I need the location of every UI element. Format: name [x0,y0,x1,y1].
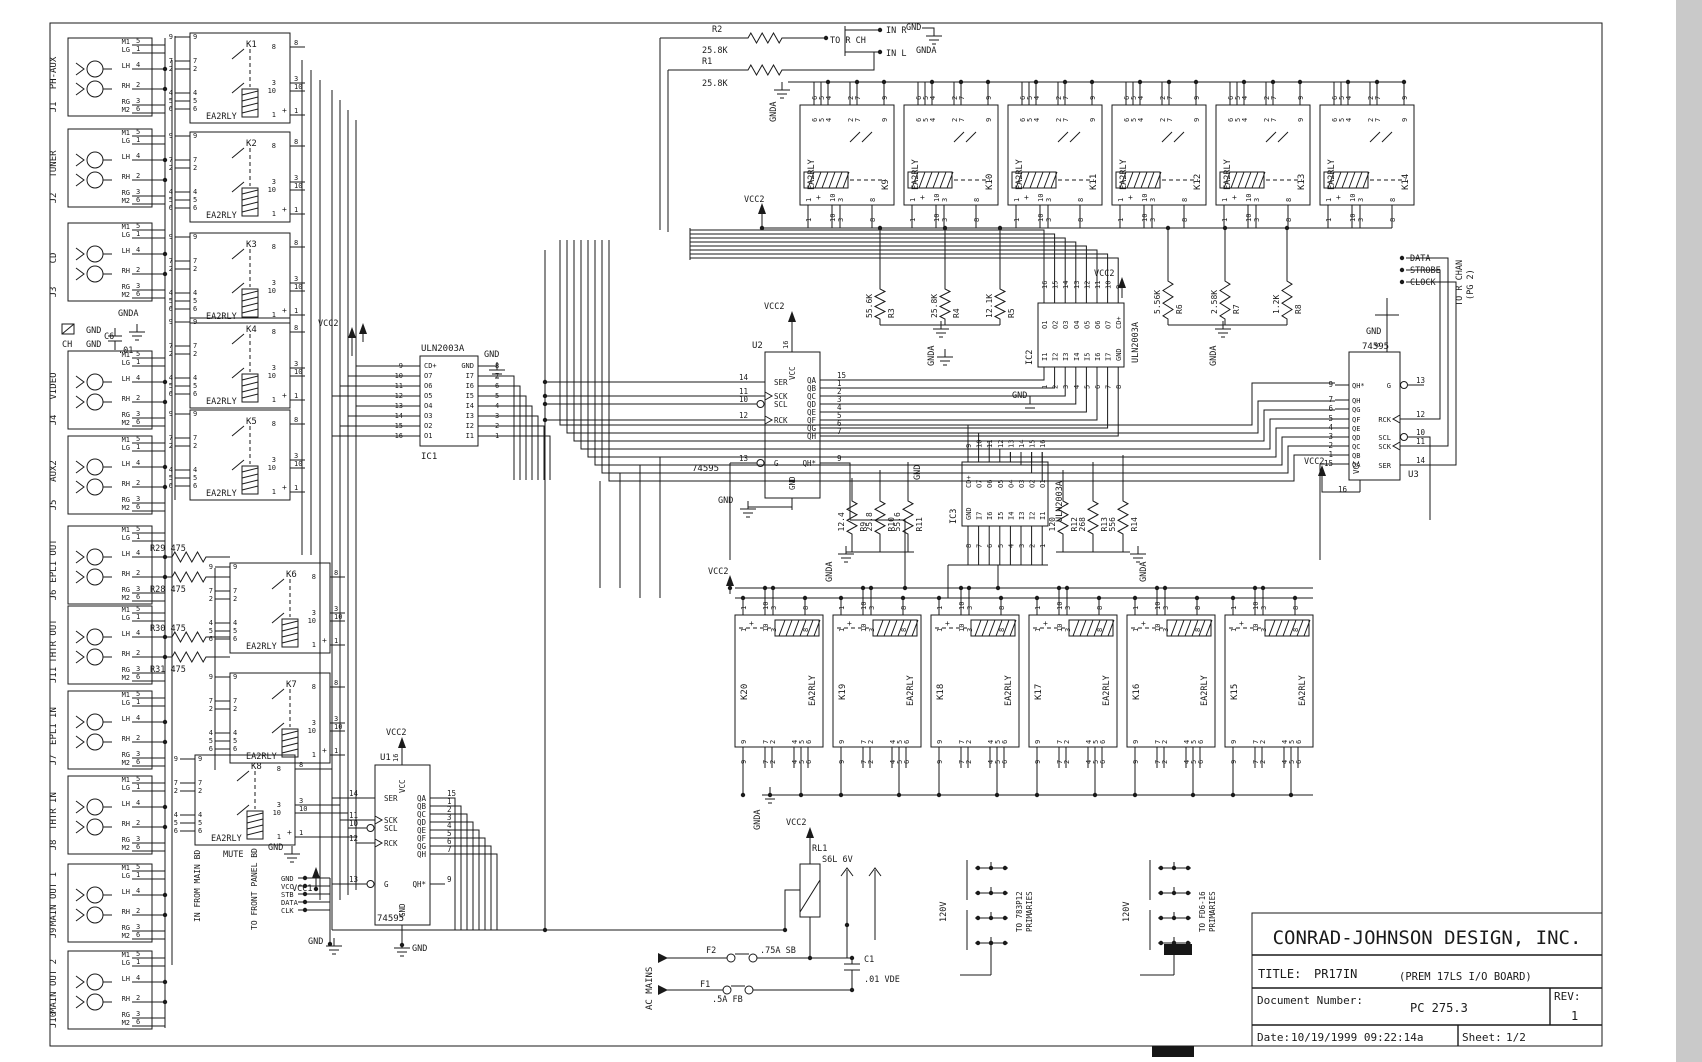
pin-number: 9 [169,318,173,326]
power-arrow-icon [788,311,796,322]
pin-label: RCK [774,416,788,425]
pin-number: 8 [1077,218,1085,222]
pin-number: 6 [136,196,140,204]
pin-number: 1 [838,606,846,610]
pin-number: 5 [136,690,140,698]
pin-label: I1 [466,432,474,440]
invert-bubble-icon [757,401,764,408]
pin-number: 5 [997,544,1005,548]
pin-number: 1 [1132,606,1140,610]
pin-number: 10 [294,283,302,291]
resistor-R31 [166,652,212,662]
pin-number: 2 [169,164,173,172]
pin-number: 2 [193,65,197,73]
pin-number: 1 [294,107,298,115]
pin-number: 3 [312,719,316,727]
wire [493,436,550,480]
pin-label: CD+ [424,362,437,370]
coil-hatch [242,480,258,484]
pin-number: 8 [1181,218,1189,222]
pin-label: RCK [1378,416,1391,424]
pin-number: 3 [136,1010,140,1018]
wire [581,240,1335,449]
resistor-value: 25.8 [865,512,874,531]
pin-number: 3 [272,364,276,372]
pin-number: 6 [1197,760,1205,764]
resistor-value: 268 [1078,517,1087,532]
coil-hatch [242,103,258,107]
pin-number: 9 [837,454,842,463]
junction-dot [763,586,767,590]
pin-number: 5 [495,392,499,400]
wire [788,52,878,70]
relay-ref: K17 [1034,684,1044,700]
pin-number: 2 [769,740,777,744]
pin-number: 2 [136,649,140,657]
junction-dot [163,400,167,404]
pin-label: RH [122,735,130,743]
net-label: GND [913,465,923,480]
pin-number: 9 [174,755,178,763]
pin-number: 3 [136,665,140,673]
wire [835,377,1044,380]
invert-bubble-icon [1401,434,1408,441]
pin-label: O3 [424,412,432,420]
pin-number: 8 [1077,198,1085,202]
pin-number: 10 [958,602,966,610]
pin-number: 6 [805,760,813,764]
net-label: DATA [1410,254,1430,264]
pin-number: 8 [1292,606,1300,610]
pin-label: I2 [1029,512,1037,520]
junction-dot [869,586,873,590]
junction-dot [1166,226,1170,230]
junction-dot [1231,793,1235,797]
pin-number: 6 [233,745,237,753]
junction-dot [808,956,812,960]
pin-number: 1 [1325,218,1333,222]
pin-label: M2 [122,932,130,940]
pin-label: M2 [122,844,130,852]
pin-number: 10 [1154,602,1162,610]
pin-label: LG [122,534,130,542]
pin-label: LG [122,359,130,367]
pin-number: 4 [136,549,140,557]
junction-dot [1159,916,1163,920]
pin-label: RH [122,908,130,916]
net-label: GND [718,496,733,506]
pin-number: 9 [936,760,944,764]
pin-label: RH [122,820,130,828]
pin-number: 4 [136,974,140,982]
resistor-R8 [1282,275,1292,325]
pin-label: O5 [424,392,432,400]
contact [1370,132,1380,142]
pin-number: 6 [136,931,140,939]
junction-dot [826,80,830,84]
pin-number: 7 [1166,118,1174,122]
pin-number: 9 [1089,96,1097,100]
junction-dot [1034,80,1038,84]
junction-dot [163,272,167,276]
pin-label: GND [398,903,407,917]
net-label: TO R CHAN [1455,260,1465,306]
power-arrow-icon [806,827,814,838]
pin-number: 7 [198,779,202,787]
rca-jack-icon [87,394,103,410]
wire [690,230,1044,293]
jack-arrow-icon [76,736,84,748]
jack-name: THTR IN [49,792,59,830]
rca-jack-icon [87,819,103,835]
resistor-value: 5.56K [1153,290,1162,314]
jack-arrow-icon [76,174,84,186]
jack-name: MAIN OUT 2 [49,959,59,1013]
junction-dot [1138,80,1142,84]
pin-number: 2 [193,265,197,273]
pin-number: 7 [1374,96,1382,100]
pin-number: 8 [1374,343,1382,347]
net-label: PRIMARIES [1025,891,1034,932]
board-subtitle: (PREM 17LS I/O BOARD) [1399,971,1532,983]
pin-number: 9 [1328,380,1333,389]
pin-number: 2 [169,350,173,358]
pin-number: 3 [294,360,298,368]
sheet-label: Sheet: [1462,1031,1502,1044]
relay-ref: K19 [838,684,848,700]
pin-number: 8 [272,420,276,428]
pin-number: 3 [136,923,140,931]
pin-number: 4 [169,289,173,297]
pin-number: 9 [1034,740,1042,744]
junction-dot [1400,256,1404,260]
pin-number: 8 [1194,606,1202,610]
pin-number: 4 [198,811,202,819]
jack-ref: J5 [49,500,59,511]
coil-hatch [242,109,258,113]
pin-number: 5 [136,222,140,230]
pin-number: 5 [169,297,173,305]
contact [237,771,249,781]
rca-jack-icon [87,907,103,923]
pin-label: M2 [122,291,130,299]
pin-number: 4 [136,887,140,895]
net-label: GND [412,944,427,954]
relay-ref: K6 [286,570,297,580]
pin-number: 3 [334,715,338,723]
junction-dot [1167,80,1171,84]
coil-hatch [1185,620,1191,636]
pin-label: O1 [424,432,432,440]
resistor-R5 [995,283,1005,325]
coil-hatch [247,813,263,817]
rca-jack-icon [87,734,103,750]
pin-label: GND [461,362,474,370]
pin-label: SCL [774,400,788,409]
pin-number: 5 [136,863,140,871]
jack-name: PH-AUX [49,56,59,89]
pin-number: 6 [136,290,140,298]
power-arrow-icon [359,323,367,334]
coil-polarity: + [282,306,287,315]
ic-ref: U1 [380,753,391,763]
contact [862,132,872,142]
ic-ref: IC3 [949,509,959,524]
pin-number: 10 [1105,281,1113,289]
company-name: CONRAD-JOHNSON DESIGN, INC. [1273,927,1582,949]
date-value: 10/19/1999 09:22:14a [1291,1031,1423,1044]
junction-dot [930,80,934,84]
pin-number: 5 [209,737,213,745]
jack-arrow-icon [76,801,84,813]
pin-number: 1 [805,198,813,202]
pin-number: 4 [169,466,173,474]
title-label: TITLE: [1258,967,1301,981]
rev-label: REV: [1554,990,1581,1003]
jack-arrow-icon [76,909,84,921]
pin-number: 8 [1115,385,1123,389]
contact [232,426,244,436]
resistor-value: 25.8K [930,294,939,318]
pin-number: 1 [1325,198,1333,202]
pin-number: 12 [1083,281,1091,289]
relay-part: EA2RLY [206,211,237,221]
resistor-value: 1.2K [1272,295,1281,314]
pin-label: RH [122,173,130,181]
junction-dot [1090,80,1094,84]
pin-number: 10 [1141,214,1149,222]
pin-label: LG [122,872,130,880]
pin-number: 6 [1099,760,1107,764]
resistor-ref: R28 475 [150,585,186,595]
pin-label: LH [122,460,130,468]
capacitor-ref: C1 [864,955,874,965]
junction-dot [998,226,1002,230]
junction-dot [959,586,963,590]
resistor-R28 [166,572,212,582]
rca-jack-icon [87,994,103,1010]
pin-label: I1 [1039,512,1047,520]
coil-hatch [1342,172,1348,188]
junction-dot [1186,866,1190,870]
rca-jack-icon [87,799,103,815]
pin-number: 2 [136,569,140,577]
pin-number: 4 [1137,118,1145,122]
pin-number: 4 [193,466,197,474]
pin-number: 9 [1230,760,1238,764]
jack-arrow-icon [76,268,84,280]
pin-number: 2 [169,265,173,273]
coil-hatch [242,297,258,301]
rca-jack-icon [87,266,103,282]
pin-label: VCC [788,366,797,380]
junction-dot [163,67,167,71]
wire [574,240,1335,441]
coil-hatch [282,743,298,747]
net-label: 120V [939,902,949,922]
contact [232,49,244,59]
pin-number: 9 [193,233,197,241]
coil-hatch [242,91,258,95]
pin-number: 14 [1062,281,1070,289]
relay-part: EA2RLY [206,112,237,122]
coil-hatch [242,196,258,200]
net-label: VCC2 [318,319,338,329]
pin-label: I5 [466,392,474,400]
pin-number: 3 [272,178,276,186]
pin-number: 1 [272,396,276,404]
jack-arrow-icon [76,461,84,473]
pin-number: 4 [929,118,937,122]
pin-number: 8 [334,569,338,577]
pin-number: 13 [1073,281,1081,289]
pin-number: 6 [136,503,140,511]
junction-dot [996,586,1000,590]
pin-number: 2 [193,442,197,450]
pin-number: 4 [495,402,499,410]
net-label: GNDA [769,102,779,122]
pin-number: 2 [136,394,140,402]
pin-label: LG [122,231,130,239]
pin-number: 6 [903,760,911,764]
junction-dot [799,793,803,797]
resistor-ref: R6 [1175,304,1184,314]
pin-number: 6 [198,827,202,835]
relay-RL1 [800,880,820,912]
pin-number: 10 [334,613,342,621]
pin-label: LH [122,715,130,723]
pin-number: 2 [495,422,499,430]
pin-number: 9 [1193,118,1201,122]
pin-label: I3 [1062,353,1070,361]
pin-number: 3 [941,218,949,222]
relay-ref: K13 [1297,174,1307,190]
pin-label: QH [417,850,427,859]
resistor-R2 [742,33,788,43]
coil-hatch [242,486,258,490]
pin-number: 2 [193,350,197,358]
pin-label: QC [1352,443,1360,451]
pin-number: 3 [1162,606,1170,610]
rca-jack-icon [87,549,103,565]
pin-number: 9 [209,673,213,681]
pin-number: 7 [1062,118,1070,122]
pin-number: 6 [1001,760,1009,764]
wire [835,377,1076,404]
pin-label: M2 [122,504,130,512]
pin-number: 9 [1193,96,1201,100]
pin-number: 16 [395,432,403,440]
pin-number: 12 [349,834,358,843]
resistor-value: 120 [1048,517,1057,532]
coil-hatch [1269,620,1275,636]
net-label: CH [62,340,72,350]
net-label: GND [1366,327,1381,337]
ic-part: ULN2003A [421,344,465,354]
pin-number: 4 [193,289,197,297]
coil-hatch [1349,172,1355,188]
rca-jack-icon [87,246,103,262]
pin-number: 4 [136,714,140,722]
net-label: VCC2 [764,302,784,312]
pin-number: 3 [272,456,276,464]
pin-number: 13 [349,875,358,884]
pin-number: 6 [1094,385,1102,389]
pin-number: 8 [294,138,298,146]
pin-number: 10 [762,602,770,610]
pin-label: QG [1352,406,1360,414]
pin-number: 2 [1161,740,1169,744]
coil-hatch [1178,620,1184,636]
ic-ref: U3 [1408,470,1419,480]
pin-number: 4 [136,799,140,807]
pin-number: 10 [294,182,302,190]
pin-number: 9 [1089,118,1097,122]
junction-dot [1400,280,1404,284]
pin-number: 12 [739,411,748,420]
pin-number: 6 [193,204,197,212]
pin-number: 1 [136,533,140,541]
pin-number: 2 [136,819,140,827]
pin-number: 4 [1073,385,1081,389]
rca-jack-icon [87,61,103,77]
pin-number: 1 [740,606,748,610]
pin-number: 5 [193,97,197,105]
pin-number: 9 [965,444,973,448]
net-label: VCC2 [744,195,764,205]
relay-ref: K14 [1401,174,1411,190]
pin-number: 14 [349,789,359,798]
resistor-ref: R7 [1232,304,1241,314]
net-label: GND [86,326,101,336]
pin-number: 2 [233,705,237,713]
jack-ref: J11 [49,667,59,683]
coil-polarity: + [1141,619,1146,628]
junction-dot [303,900,307,904]
jack-arrow-icon [76,996,84,1008]
fuse-icon [749,954,757,962]
pin-number: 4 [193,89,197,97]
junction-dot [543,380,547,384]
junction-dot [163,913,167,917]
pin-number: 2 [769,760,777,764]
pin-number: 2 [965,760,973,764]
pin-number: 10 [1349,214,1357,222]
pin-number: 2 [1259,740,1267,744]
pin-number: 7 [233,587,237,595]
pin-number: 10 [1349,194,1357,202]
pin-number: 1 [909,218,917,222]
junction-dot [1223,226,1227,230]
pin-number: 7 [1328,395,1333,404]
relay-ref: K1 [246,40,257,50]
coil-polarity: + [282,483,287,492]
contact [966,132,976,142]
wire [445,854,497,930]
pin-label: QD [1352,434,1360,442]
jack-name: AUX2 [49,460,59,482]
junction-dot [1065,586,1069,590]
contact [1382,132,1392,142]
pin-number: 1 [805,218,813,222]
coil-polarity: + [322,636,327,645]
pin-label: I7 [976,512,984,520]
resistor-ref: R11 [915,517,924,532]
pin-label: SER [1378,462,1391,470]
pin-number: 3 [294,275,298,283]
junction-dot [976,941,980,945]
junction-dot [1242,80,1246,84]
